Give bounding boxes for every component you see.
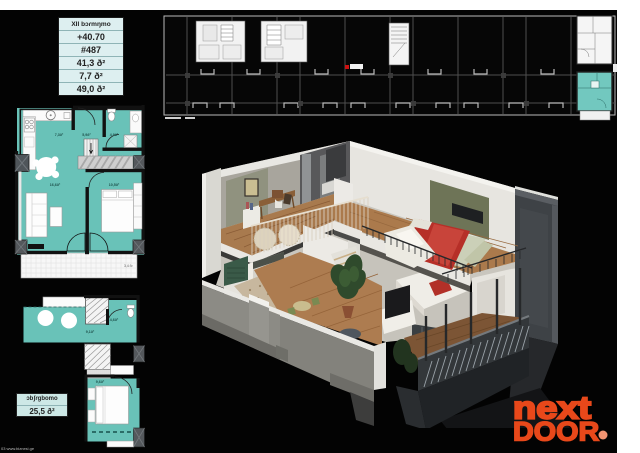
svg-text:9,6ð²: 9,6ð²: [96, 379, 105, 384]
svg-text:10,5ð²: 10,5ð²: [109, 182, 120, 187]
svg-text:16,6ð²: 16,6ð²: [50, 182, 61, 187]
svg-text:3,4 ð²: 3,4 ð²: [124, 263, 134, 268]
svg-text:4,9ð²: 4,9ð²: [110, 132, 119, 137]
svg-text:7,3ð²: 7,3ð²: [55, 132, 64, 137]
svg-text:DOOR: DOOR: [513, 416, 599, 444]
svg-text:5,9ð²: 5,9ð²: [82, 132, 91, 137]
svg-text:4,6ð²: 4,6ð²: [110, 317, 119, 322]
svg-text:9,1ð²: 9,1ð²: [86, 329, 95, 334]
